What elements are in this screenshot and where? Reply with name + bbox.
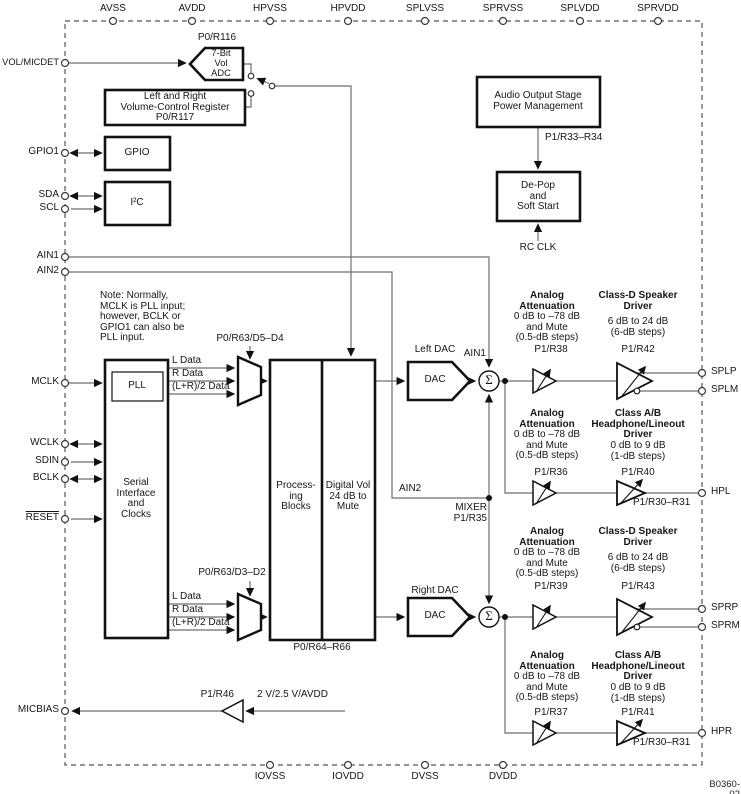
invert-bubble-1	[634, 388, 640, 394]
mux-bottom-register: P0/R63/D3–D2	[198, 568, 265, 579]
pin-label-iovdd: IOVDD	[332, 772, 364, 783]
pin-label-scl: SCL	[40, 203, 59, 214]
switch-pole-register	[248, 91, 254, 97]
row2-driver-reg: P1/R40	[621, 468, 654, 479]
vol-adc-register: P0/R116	[198, 33, 236, 44]
row4-atten-range: 0 dB to –78 dB and Mute (0.5-dB steps)	[514, 672, 580, 704]
row4-atten-title: Analog Attenuation	[519, 651, 575, 672]
pin-label-hpl: HPL	[711, 487, 730, 498]
pin-label-sprvss: SPRVSS	[483, 4, 523, 15]
codec-block-diagram: AVSS AVDD HPVSS HPVDD SPLVSS SPRVSS SPLV…	[0, 0, 741, 794]
row4-driver-reg: P1/R41	[621, 708, 654, 719]
row4-driver-range: 0 dB to 9 dB (1-dB steps)	[610, 683, 665, 704]
mux-top-input-l: L Data	[172, 356, 201, 367]
vol-register-label: Left and Right Volume-Control Register P…	[121, 92, 230, 124]
pin-label-sdin: SDIN	[35, 456, 59, 467]
switch-contacts	[248, 73, 275, 96]
ain2-net-label: AIN2	[399, 484, 421, 495]
row2-driver-extra: P1/R30–R31	[633, 498, 690, 509]
digital-vol-register: P0/R64–R66	[293, 643, 350, 654]
pll-note: Note: Normally, MCLK is PLL input; howev…	[100, 291, 185, 344]
pll-label: PLL	[128, 381, 146, 392]
pin-label-splvdd: SPLVDD	[560, 4, 599, 15]
pin-label-ain1: AIN1	[37, 251, 59, 262]
rc-clk-label: RC CLK	[520, 243, 557, 254]
mux-top-input-lr2: (L+R)/2 Data	[172, 382, 230, 393]
mux-top-shape	[238, 357, 261, 405]
pin-label-splvss: SPLVSS	[406, 4, 444, 15]
atten-amp-4	[533, 721, 556, 745]
pin-label-bclk: BCLK	[33, 473, 59, 484]
atten-amp-3	[533, 605, 556, 629]
row2-driver-range: 0 dB to 9 dB (1-dB steps)	[610, 441, 665, 462]
row2-atten-reg: P1/R36	[534, 468, 567, 479]
pin-label-avdd: AVDD	[178, 4, 205, 15]
row1-atten-title: Analog Attenuation	[519, 291, 575, 312]
micbias-amp-shape	[222, 700, 243, 722]
right-dac-title: Right DAC	[411, 586, 458, 597]
pin-label-splm: SPLM	[711, 385, 738, 396]
mux-bottom-input-r: R Data	[172, 605, 203, 616]
digital-vol-label: Digital Vol 24 dB to Mute	[326, 481, 370, 513]
i2c-label: I²C	[130, 198, 143, 209]
sum2-sigma: Σ	[485, 609, 493, 623]
micbias-amp-register: P1/R46	[201, 690, 234, 701]
pin-label-sprp: SPRP	[711, 603, 738, 614]
pin-label-hpvdd: HPVDD	[330, 4, 365, 15]
invert-bubble-2	[634, 624, 640, 630]
pin-label-dvdd: DVDD	[489, 772, 517, 783]
row4-driver-title: Class A/B Headphone/Lineout Driver	[591, 651, 684, 683]
audio-pm-register: P1/R33–R34	[545, 133, 602, 144]
mux-top-input-r: R Data	[172, 369, 203, 380]
right-dac-label: DAC	[424, 611, 445, 622]
row3-atten-reg: P1/R39	[534, 582, 567, 593]
left-dac-title: Left DAC	[415, 345, 456, 356]
micbias-source-label: 2 V/2.5 V/AVDD	[257, 690, 328, 701]
mux-top-register: P0/R63/D5–D4	[216, 334, 283, 345]
vol-adc-label: 7-Bit Vol ADC	[211, 49, 231, 78]
row2-atten-title: Analog Attenuation	[519, 409, 575, 430]
mixer-label: MIXER P1/R35	[454, 503, 487, 524]
atten-amp-1	[533, 369, 556, 393]
pin-label-hpvss: HPVSS	[253, 4, 287, 15]
row1-driver-range: 6 dB to 24 dB (6-dB steps)	[608, 317, 669, 338]
pin-label-ain2: AIN2	[37, 266, 59, 277]
sum1-sigma: Σ	[485, 373, 493, 387]
row4-driver-extra: P1/R30–R31	[633, 738, 690, 749]
pin-label-hpr: HPR	[711, 727, 732, 738]
pin-label-wclk: WCLK	[30, 438, 59, 449]
pin-label-gpio1: GPIO1	[28, 147, 59, 158]
figure-id: B0360-02	[709, 780, 740, 794]
pin-label-vol-micdet: VOL/MICDET	[2, 58, 59, 68]
pin-label-reset: RESET	[26, 513, 59, 524]
row3-driver-title: Class-D Speaker Driver	[599, 527, 678, 548]
mux-bottom-input-lr2: (L+R)/2 Data	[172, 618, 230, 629]
mux-bottom-input-l: L Data	[172, 592, 201, 603]
pin-label-splp: SPLP	[711, 367, 737, 378]
audio-pm-label: Audio Output Stage Power Management	[493, 91, 583, 112]
wire-switch-wiper	[258, 79, 269, 84]
row1-driver-reg: P1/R42	[621, 345, 654, 356]
pin-label-micbias: MICBIAS	[18, 705, 59, 716]
row4-atten-reg: P1/R37	[534, 708, 567, 719]
wire-switch-to-digvol	[275, 86, 351, 355]
left-dac-label: DAC	[424, 375, 445, 386]
row1-atten-reg: P1/R38	[534, 345, 567, 356]
atten-amp-2	[533, 481, 556, 505]
pin-label-mclk: MCLK	[31, 377, 59, 388]
mux-bottom-shape	[238, 594, 261, 640]
row1-driver-title: Class-D Speaker Driver	[599, 291, 678, 312]
serial-interface-label: Serial Interface and Clocks	[117, 478, 156, 520]
gpio-label: GPIO	[124, 148, 149, 159]
row3-driver-reg: P1/R43	[621, 582, 654, 593]
pin-label-avss: AVSS	[100, 4, 126, 15]
depop-label: De-Pop and Soft Start	[517, 181, 559, 213]
switch-common	[269, 83, 275, 89]
pin-label-iovss: IOVSS	[255, 772, 286, 783]
row3-driver-range: 6 dB to 24 dB (6-dB steps)	[608, 553, 669, 574]
switch-pole-adc	[248, 73, 254, 79]
row3-atten-range: 0 dB to –78 dB and Mute (0.5-dB steps)	[514, 548, 580, 580]
row2-atten-range: 0 dB to –78 dB and Mute (0.5-dB steps)	[514, 430, 580, 462]
pin-label-sprm: SPRM	[711, 621, 740, 632]
pin-label-sprvdd: SPRVDD	[637, 4, 679, 15]
row2-driver-title: Class A/B Headphone/Lineout Driver	[591, 409, 684, 441]
pin-label-dvss: DVSS	[411, 772, 438, 783]
row1-atten-range: 0 dB to –78 dB and Mute (0.5-dB steps)	[514, 312, 580, 344]
processing-label: Process- ing Blocks	[276, 481, 315, 513]
row3-atten-title: Analog Attenuation	[519, 527, 575, 548]
pin-label-sda: SDA	[38, 190, 59, 201]
ain1-net-label: AIN1	[464, 349, 486, 360]
